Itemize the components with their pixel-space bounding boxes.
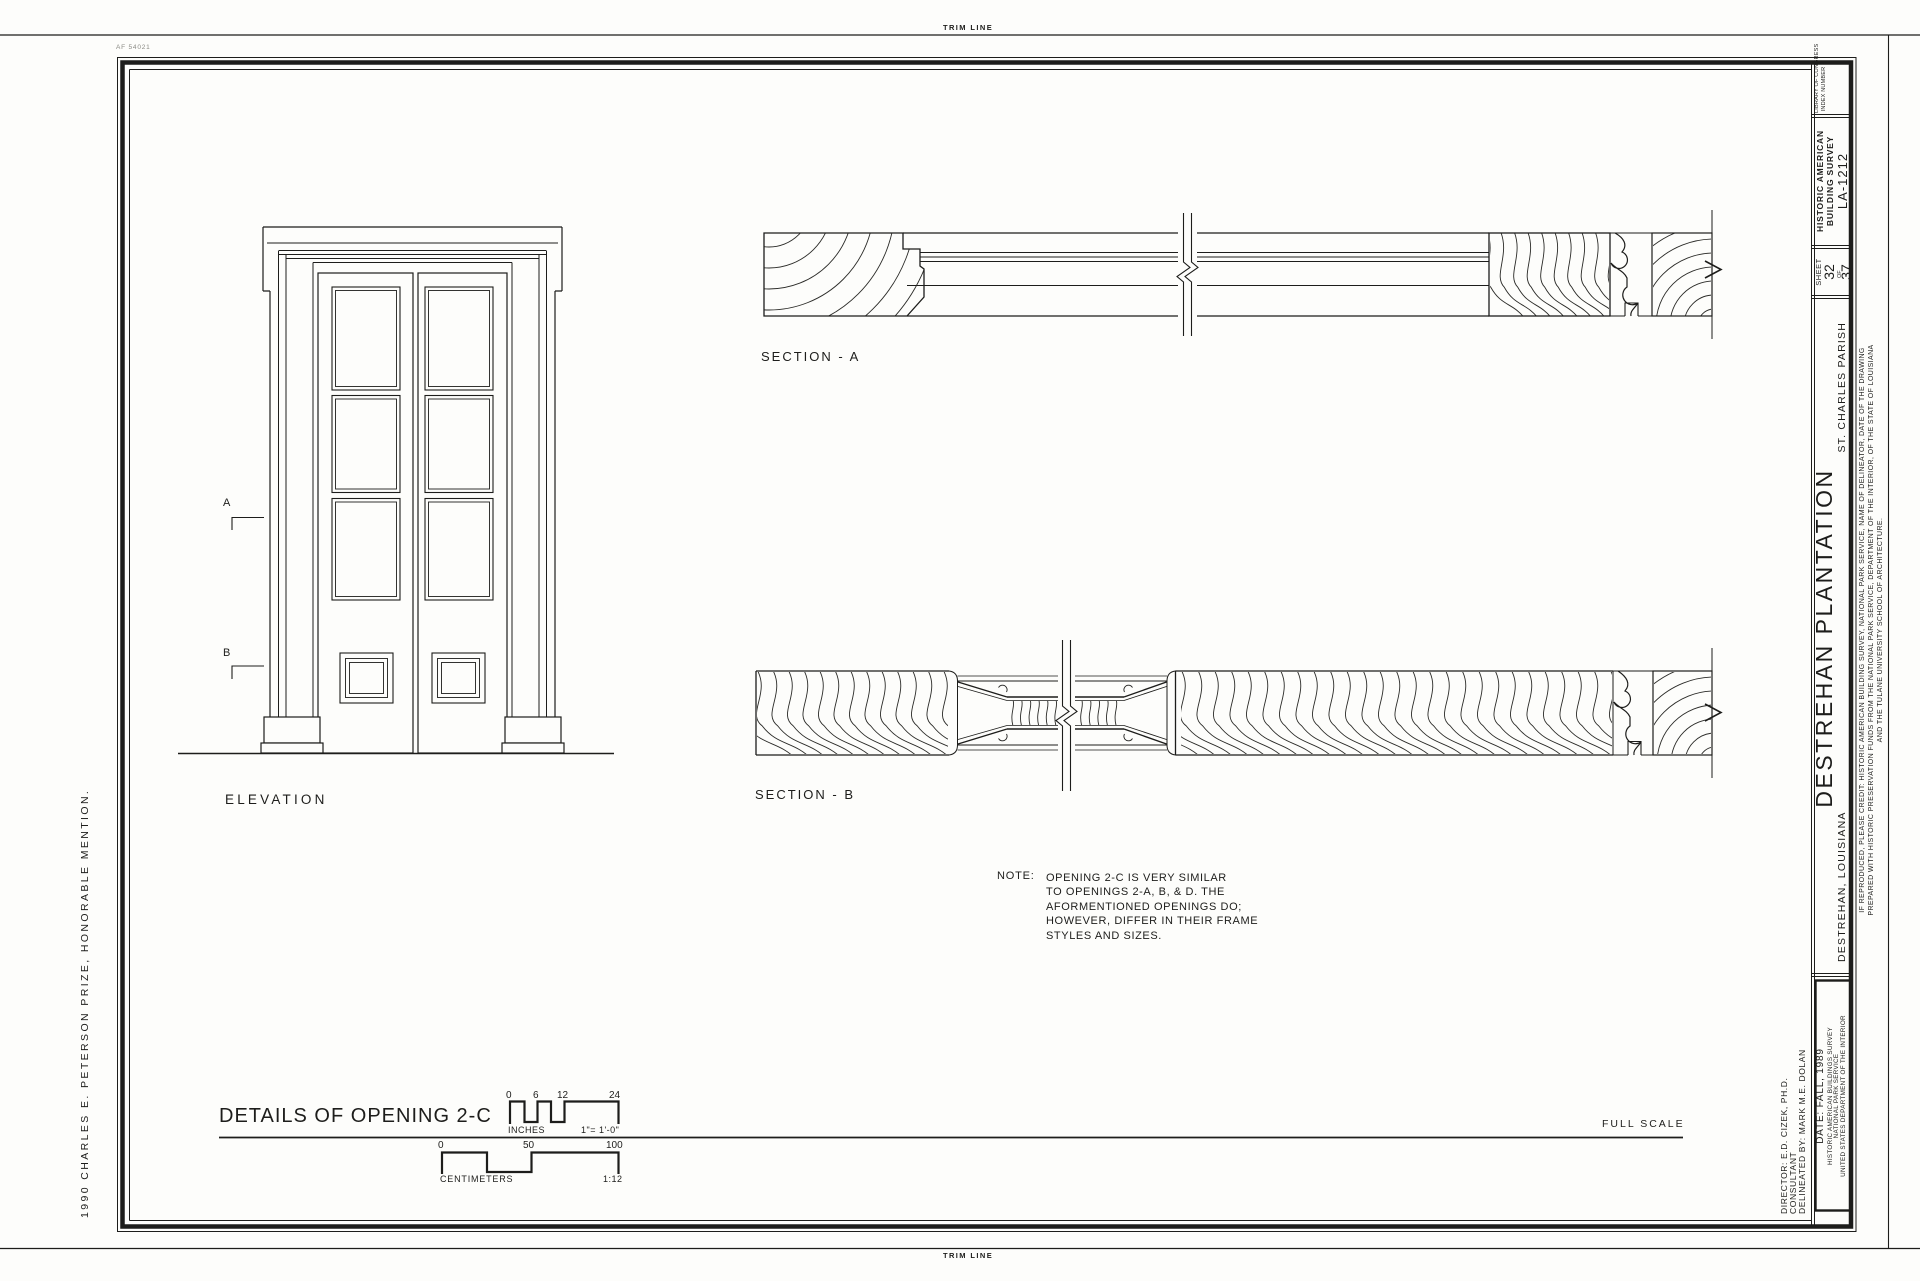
sheet-total: 37 bbox=[1839, 250, 1853, 294]
note-line: TO OPENINGS 2-A, B, & D. THE bbox=[1046, 885, 1258, 899]
wall-break-arrow-b bbox=[1705, 704, 1721, 721]
section-cut-b-bracket bbox=[232, 666, 264, 679]
inches-tick-12: 12 bbox=[557, 1091, 568, 1101]
survey-name-line1: HISTORIC AMERICAN bbox=[1816, 118, 1825, 244]
centimeters-label: CENTIMETERS bbox=[440, 1175, 513, 1184]
wall-break-arrow-a bbox=[1705, 261, 1721, 278]
sheet-number: 32 bbox=[1822, 250, 1836, 294]
sheet-title: DETAILS OF OPENING 2-C bbox=[219, 1106, 492, 1126]
note-line: AFORMENTIONED OPENINGS DO; bbox=[1046, 900, 1258, 914]
usdoi-credit: UNITED STATES DEPARTMENT OF THE INTERIOR bbox=[1841, 983, 1847, 1209]
section-a-grain bbox=[601, 37, 1814, 425]
door-elevation-drawing bbox=[178, 227, 614, 754]
credit-line-3: AND THE TULANE UNIVERSITY SCHOOL OF ARCH… bbox=[1877, 280, 1884, 980]
cm-tick-50: 50 bbox=[523, 1141, 534, 1151]
note-line: HOWEVER, DIFFER IN THEIR FRAME bbox=[1046, 914, 1258, 928]
sheet-linework bbox=[0, 0, 1920, 1281]
index-number-label: INDEX NUMBER bbox=[1822, 65, 1828, 113]
date-credit: DATE: FALL, 1989 bbox=[1816, 983, 1826, 1209]
section-b-label: SECTION - B bbox=[755, 788, 855, 801]
library-of-congress-label: LIBRARY OF CONGRESS bbox=[1815, 65, 1821, 113]
inches-scale-bar bbox=[510, 1102, 619, 1125]
credit-line-1: IF REPRODUCED, PLEASE CREDIT: HISTORIC A… bbox=[1859, 280, 1866, 980]
cm-tick-0: 0 bbox=[438, 1141, 444, 1151]
elevation-label: ELEVATION bbox=[225, 793, 328, 807]
section-a-drawing bbox=[601, 37, 1814, 425]
section-cut-a-bracket bbox=[232, 518, 264, 531]
cm-tick-100: 100 bbox=[606, 1141, 623, 1151]
inches-tick-6: 6 bbox=[533, 1091, 539, 1101]
inches-tick-24: 24 bbox=[609, 1091, 620, 1101]
negative-number-stamp: AF 54021 bbox=[116, 45, 151, 52]
inches-tick-0: 0 bbox=[506, 1091, 512, 1101]
property-title: DESTREHAN PLANTATION bbox=[1813, 302, 1836, 974]
trim-line-label-top: TRIM LINE bbox=[943, 24, 993, 32]
survey-number: LA-1212 bbox=[1836, 118, 1849, 244]
credit-line-2: PREPARED WITH HISTORIC PRESERVATION FUND… bbox=[1868, 280, 1875, 980]
centimeters-scale-bar bbox=[442, 1153, 619, 1175]
trim-lines bbox=[0, 35, 1920, 1249]
note-line: OPENING 2-C IS VERY SIMILAR bbox=[1046, 871, 1258, 885]
section-a-label: SECTION - A bbox=[761, 350, 860, 363]
inches-ratio: 1"= 1'-0" bbox=[581, 1126, 619, 1135]
centimeters-ratio: 1:12 bbox=[603, 1175, 623, 1184]
section-b-grain bbox=[740, 663, 1815, 863]
note-label: NOTE: bbox=[997, 871, 1035, 882]
survey-name-line2: BUILDING SURVEY bbox=[1826, 118, 1835, 244]
trim-line-label-bottom: TRIM LINE bbox=[943, 1252, 993, 1260]
delineator-credit: DELINEATED BY: MARK M.E. DOLAN bbox=[1798, 1049, 1807, 1214]
section-marker-a: A bbox=[223, 498, 230, 509]
note-line: STYLES AND SIZES. bbox=[1046, 929, 1258, 943]
inches-label: INCHES bbox=[508, 1126, 545, 1135]
habs-drawing-sheet: TRIM LINE TRIM LINE AF 54021 1990 CHARLE… bbox=[0, 0, 1920, 1281]
property-location: DESTREHAN, LOUISIANA bbox=[1837, 811, 1848, 962]
section-b-drawing bbox=[740, 640, 1815, 863]
full-scale-label: FULL SCALE bbox=[1602, 1119, 1685, 1130]
peterson-prize-note: 1990 CHARLES E. PETERSON PRIZE, HONORABL… bbox=[80, 789, 91, 1218]
section-marker-b: B bbox=[223, 648, 230, 659]
note-text: OPENING 2-C IS VERY SIMILAR TO OPENINGS … bbox=[1046, 871, 1258, 943]
